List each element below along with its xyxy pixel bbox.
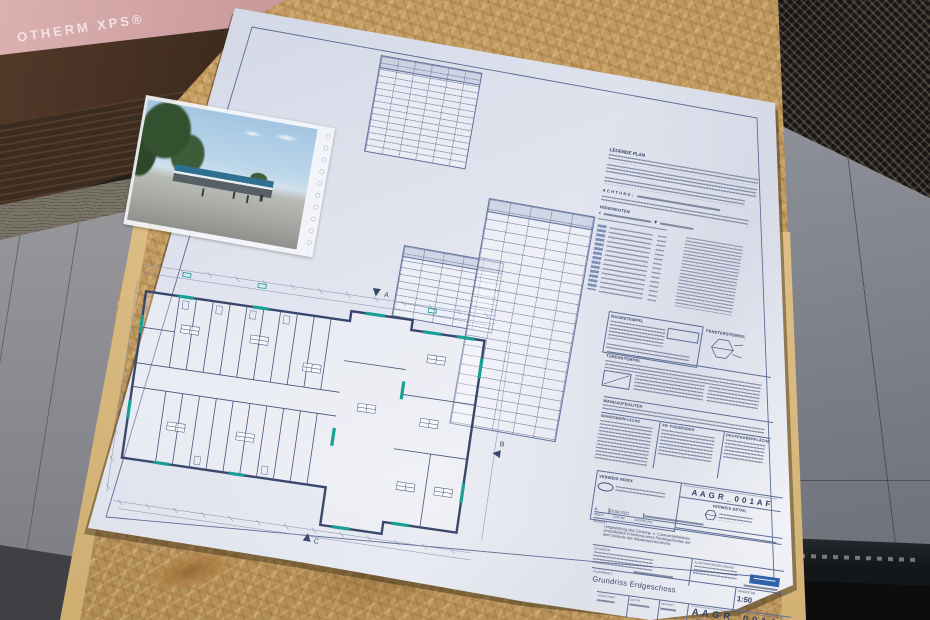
construction-site-photo: OTHERM XPS® <box>0 0 930 620</box>
legend-block: LEGENDE PLAN ACHTUNG: HÖHENKOTEN ◐ ▼ <box>582 147 765 337</box>
section-letter-b: B <box>499 441 505 449</box>
checked-value-bar <box>660 608 676 612</box>
floor-col: FB FUSSBODEN <box>654 422 725 478</box>
floor-lines <box>658 429 715 463</box>
drawn-cell: GEZEICHNET <box>594 592 630 618</box>
wall-surface-col: WANDOBERFLÄCHE <box>594 413 661 469</box>
height-symbol-circle-icon: ◐ <box>598 210 602 216</box>
window-stamp-sketch <box>702 335 745 363</box>
section-letter-a: A <box>384 292 390 300</box>
outer-walls <box>116 281 486 544</box>
checked-cell: GEPRÜFT <box>657 600 689 620</box>
person <box>232 191 236 198</box>
height-symbol-triangle-icon: ▼ <box>653 219 659 226</box>
detail-hexagon-icon <box>704 510 717 522</box>
rendering-photo <box>127 99 318 249</box>
date-cell: DATUM <box>627 596 661 620</box>
schedule-table-1 <box>364 55 482 169</box>
drawn-value-bar <box>597 599 615 603</box>
floor-plan-drawing: A B C <box>102 250 530 570</box>
door-diagram <box>602 370 632 390</box>
ceiling-lines <box>722 439 765 465</box>
person <box>245 195 249 203</box>
ceiling-col: DECKENOBERFLÄCHE <box>717 432 770 486</box>
person <box>259 195 263 202</box>
clouds <box>237 123 308 152</box>
wall-surface-lines <box>594 420 652 468</box>
index-note-bar <box>615 485 665 498</box>
fb-label: FB <box>662 423 668 428</box>
index-oval-icon <box>597 481 614 492</box>
detail-legend-bars <box>718 513 753 525</box>
date-value-bar <box>629 603 649 608</box>
